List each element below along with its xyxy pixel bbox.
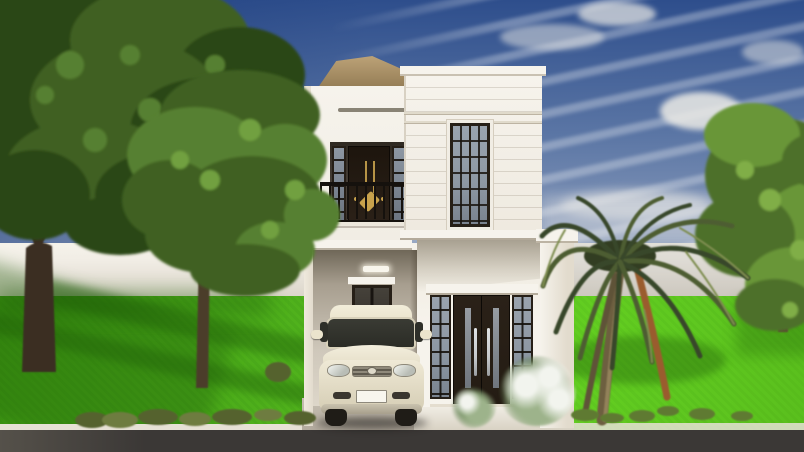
tree-shadow bbox=[736, 300, 804, 356]
window-pane bbox=[453, 126, 469, 224]
floor-divider-ledge bbox=[306, 240, 412, 250]
curb bbox=[566, 423, 804, 430]
palm-shadow bbox=[556, 336, 726, 384]
entry-lintel bbox=[426, 284, 538, 295]
balcony-railing bbox=[320, 182, 416, 223]
car-license-plate bbox=[356, 390, 387, 403]
balcony-floor-ledge bbox=[318, 222, 410, 228]
cloud bbox=[578, 2, 656, 26]
road bbox=[0, 430, 804, 452]
tree-shadow bbox=[0, 290, 270, 316]
car-mirror bbox=[420, 330, 432, 339]
car-logo-badge bbox=[367, 367, 377, 375]
carport-ceiling-lamp bbox=[363, 266, 389, 272]
boundary-wall-shaded-right bbox=[560, 243, 804, 301]
car-headlight bbox=[393, 364, 416, 377]
white-flower-shrub bbox=[498, 356, 576, 426]
horizon-haze bbox=[540, 196, 804, 244]
car-fog-slot bbox=[392, 392, 410, 399]
door-handle bbox=[474, 328, 477, 376]
parapet-shadow-groove bbox=[338, 108, 408, 112]
door-glass-insert bbox=[465, 308, 471, 388]
roof-parapet-cap bbox=[400, 66, 546, 76]
upper-window bbox=[450, 123, 490, 227]
floor-divider-ledge bbox=[400, 230, 546, 240]
facade-trim-band bbox=[404, 112, 542, 115]
carport-window-lintel bbox=[348, 277, 395, 285]
white-flower-shrub bbox=[448, 386, 496, 428]
entry-sidelight-window bbox=[430, 295, 451, 399]
cloud bbox=[198, 48, 240, 76]
garden-wall-cap bbox=[536, 229, 578, 243]
scene-canvas bbox=[0, 0, 804, 452]
cloud bbox=[128, 40, 168, 64]
cloud bbox=[500, 24, 604, 50]
car-fog-slot bbox=[333, 392, 351, 399]
car-wheel bbox=[395, 409, 417, 426]
door-handle bbox=[487, 328, 490, 376]
window-pane bbox=[471, 126, 487, 224]
car-headlight bbox=[327, 364, 350, 377]
cloud bbox=[660, 92, 742, 130]
car-wheel bbox=[325, 409, 347, 426]
door-glass-insert bbox=[493, 308, 499, 388]
car-mirror bbox=[311, 330, 323, 339]
cloud bbox=[742, 40, 804, 64]
